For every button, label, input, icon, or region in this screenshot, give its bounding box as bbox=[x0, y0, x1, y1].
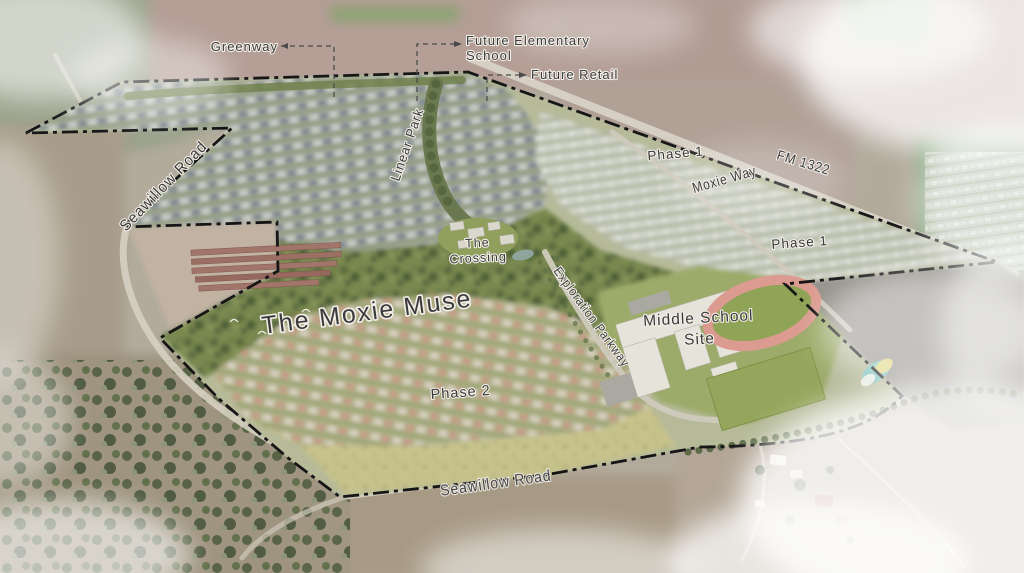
label-future-retail: Future Retail bbox=[531, 67, 618, 82]
label-the-crossing-line2: Crossing bbox=[449, 250, 507, 267]
masterplan-svg: Greenway Future Elementary School Future… bbox=[0, 0, 1024, 573]
label-future-elementary-line2: School bbox=[466, 48, 512, 63]
label-the-crossing-line1: The bbox=[465, 235, 490, 250]
masterplan-rendering: Greenway Future Elementary School Future… bbox=[0, 0, 1024, 573]
label-future-elementary-line1: Future Elementary bbox=[466, 33, 590, 48]
label-middle-school-line2: Site bbox=[684, 330, 716, 349]
label-greenway: Greenway bbox=[211, 39, 278, 54]
